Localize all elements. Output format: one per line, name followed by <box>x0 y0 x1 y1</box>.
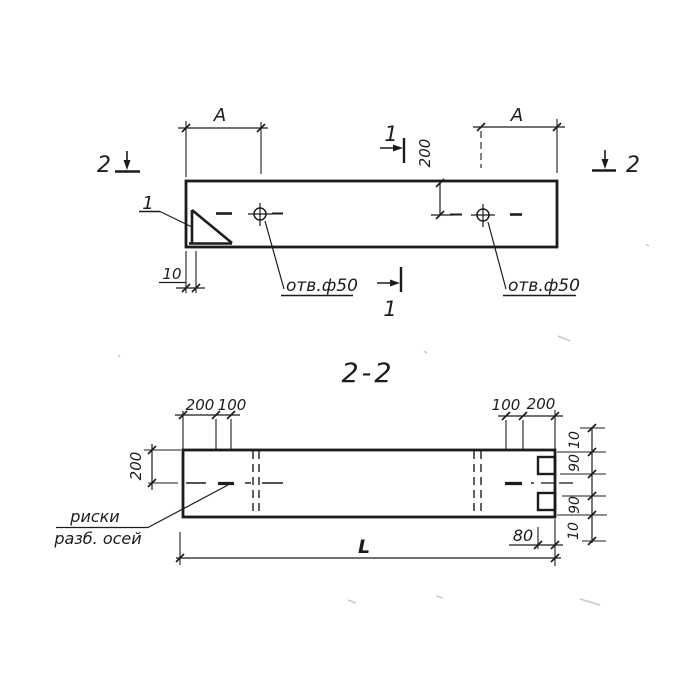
arrow-down-icon <box>124 160 131 170</box>
dim-length: L <box>176 532 561 565</box>
arrow-right-icon <box>390 280 400 287</box>
dim-200-plan: 200 <box>416 139 453 219</box>
section-title: 2-2 <box>341 358 394 389</box>
axis-callout-line1: риски <box>69 507 119 526</box>
section-beam-outline <box>183 450 555 517</box>
hole-callout-left-label: отв.ф50 <box>286 276 358 296</box>
dim-200-plan-label: 200 <box>416 139 434 168</box>
section-marker-1-top: 1 <box>380 122 404 163</box>
section-view: 200 200 100 100 200 <box>53 395 607 566</box>
dim-10-plan-label: 10 <box>162 265 181 283</box>
dim-top-left-200: 200 <box>186 396 215 414</box>
dim-top-left-100: 100 <box>218 396 247 414</box>
section-marker-2-left: 2 <box>97 151 140 178</box>
arrow-right-icon <box>393 145 403 152</box>
dim-top-right-200: 200 <box>527 395 556 413</box>
dim-right-90-bottom: 90 <box>567 496 583 514</box>
dim-top-right-100: 100 <box>492 396 521 414</box>
notch-bottom <box>538 493 555 510</box>
plan-beam-outline <box>186 181 557 247</box>
dim-a-left-label: A <box>213 105 226 126</box>
drawing-svg: A A 200 1 <box>0 0 700 700</box>
dim-right-chain: 10 90 90 10 <box>557 424 607 545</box>
hole-callout-left: отв.ф50 <box>265 221 358 296</box>
dim-right-10-bottom: 10 <box>566 522 582 540</box>
dim-top-left: 200 100 <box>175 396 246 449</box>
technical-drawing-sheet: A A 200 1 <box>0 0 700 700</box>
section-marker-1-bottom: 1 <box>377 267 401 321</box>
dim-a-right: A <box>473 105 565 173</box>
section-1-bottom-label: 1 <box>383 297 396 321</box>
hole-right <box>450 204 522 227</box>
section-2-right-label: 2 <box>626 153 640 178</box>
dim-200-section-label: 200 <box>127 452 145 481</box>
arrow-down-icon <box>602 159 609 169</box>
dim-a-right-label: A <box>510 105 523 126</box>
section-marker-2-right: 2 <box>592 150 640 178</box>
dim-10-plan: 10 <box>159 251 205 293</box>
axis-marks-left <box>148 483 283 484</box>
axis-marks-right <box>505 483 573 484</box>
detail-callout-1: 1 <box>139 193 192 227</box>
section-1-top-label: 1 <box>384 122 397 146</box>
hole-left <box>216 203 283 226</box>
dim-a-left: A <box>178 105 268 177</box>
dim-right-10-top: 10 <box>567 431 583 449</box>
axis-callout-line2: разб. осей <box>53 529 141 548</box>
notch-top <box>538 457 555 474</box>
dim-length-label: L <box>358 536 370 558</box>
dim-80-label: 80 <box>513 526 533 545</box>
hole-callout-right-label: отв.ф50 <box>508 276 580 296</box>
hidden-hole-lines <box>253 451 481 516</box>
dim-right-90-top: 90 <box>567 454 583 472</box>
end-triangle-detail <box>189 210 232 244</box>
hole-callout-right: отв.ф50 <box>488 222 580 296</box>
plan-view: A A 200 1 <box>97 105 640 321</box>
dim-top-right: 100 200 <box>492 395 563 449</box>
section-2-left-label: 2 <box>97 153 111 178</box>
